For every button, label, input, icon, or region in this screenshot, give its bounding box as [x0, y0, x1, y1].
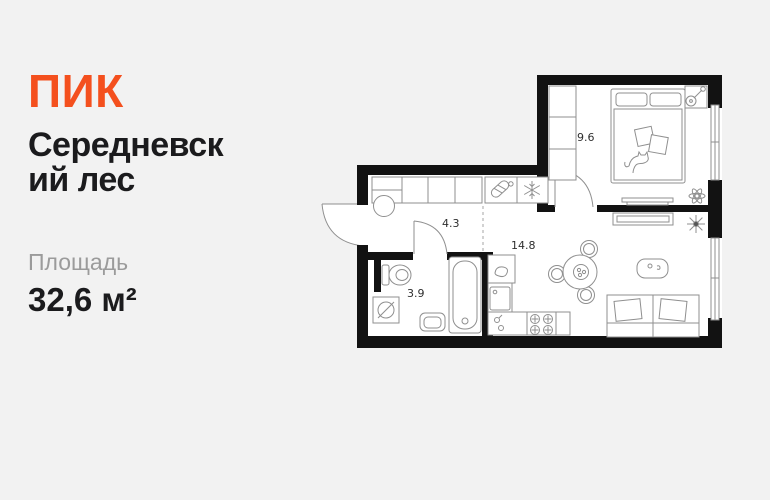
- listing-card[interactable]: ПИК Середневск ий лес Площадь 32,6 м²: [0, 0, 770, 500]
- kitchen-living-area-label: 14.8: [511, 239, 536, 252]
- hallway-area-label: 4.3: [442, 217, 460, 230]
- water-heater-box: [485, 176, 517, 203]
- washing-machine: [373, 297, 399, 323]
- bedroom-wardrobe: [549, 86, 576, 180]
- dining-table: [563, 255, 597, 289]
- smart-lock-icon: [685, 86, 707, 108]
- bathroom-area-label: 3.9: [407, 287, 425, 300]
- kitchen-counter-row: [488, 312, 570, 335]
- ottoman: [637, 259, 668, 278]
- plant-star-icon: [687, 215, 705, 233]
- bathtub: [449, 257, 481, 333]
- entrance-door: [322, 204, 364, 246]
- hallway-stool: [374, 196, 395, 217]
- bedroom-area-label: 9.6: [577, 131, 595, 144]
- floor-plan: 9.6 4.3 14.8 3.9: [0, 0, 770, 500]
- kitchen-sink-cabinet: [488, 255, 515, 283]
- bed: [611, 89, 685, 183]
- ac-box: [517, 177, 548, 203]
- bathroom-sink: [420, 313, 445, 331]
- bedroom-window: [711, 105, 719, 180]
- sofa: [607, 295, 699, 337]
- tv-console: [613, 213, 673, 225]
- toilet: [382, 265, 411, 285]
- kitchen-counter-cabinet: [488, 283, 512, 312]
- living-window: [711, 238, 719, 320]
